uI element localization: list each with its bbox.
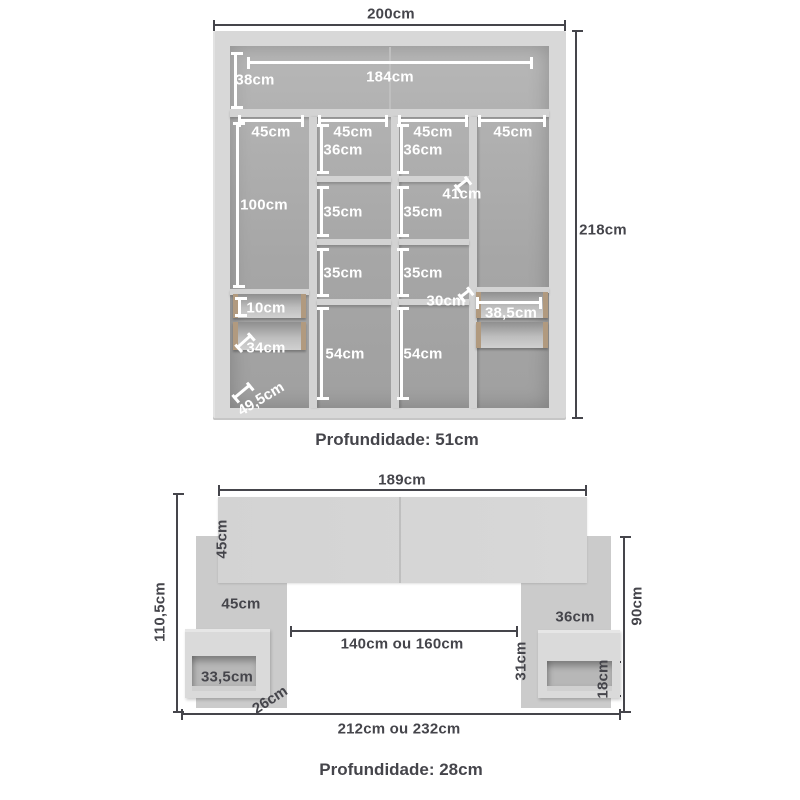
panel-height-label: 45cm [214, 519, 231, 558]
left-column-height-dim-line [236, 122, 239, 288]
wardrobe-width-dim-line [213, 24, 566, 26]
col3-shelf-2 [399, 239, 469, 245]
col2-shelf-2 [317, 239, 391, 245]
col3-width-label: 45cm [413, 124, 452, 141]
inner-width-dim-line [247, 61, 533, 64]
col2-shelf-1 [317, 176, 391, 182]
right-height-label: 90cm [629, 586, 646, 625]
right-height-dim-line [623, 536, 625, 713]
top-shelf [230, 109, 549, 117]
total-width-label: 212cm ou 232cm [338, 721, 461, 738]
col2-35a-label: 35cm [323, 204, 362, 221]
drawer-height-label: 10cm [246, 300, 285, 317]
side-panel-width-label: 45cm [221, 596, 260, 613]
col4-width-label: 45cm [493, 124, 532, 141]
col1-width-label: 45cm [251, 124, 290, 141]
headboard-diagram: 189cm 110,5cm 45cm 45cm 33,5cm 26cm 140c… [0, 455, 800, 800]
headboard-width-dim-line [218, 489, 587, 491]
col3-width-dim-line [398, 119, 468, 122]
total-width-dim-line [181, 713, 621, 715]
niche-right-height-label: 18cm [595, 659, 612, 698]
left-column-height-label: 100cm [240, 197, 288, 214]
headboard-width-label: 189cm [378, 472, 426, 489]
col1-width-dim-line [238, 119, 304, 122]
furniture-dimension-sheet: { "colors":{ "ink":"#45454b", "wardrobe_… [0, 0, 800, 800]
col2-width-dim-line [318, 119, 388, 122]
drawer-section-height-label: 30cm [426, 293, 465, 310]
divider-2 [391, 117, 399, 408]
col3-35b-label: 35cm [403, 265, 442, 282]
col2-shelf-3 [317, 299, 391, 305]
wardrobe-height-label: 218cm [579, 222, 627, 239]
right-drawer-width-label: 38,5cm [485, 305, 537, 322]
total-height-label: 110,5cm [152, 582, 169, 642]
headboard-seam [399, 497, 401, 583]
right-drawer-2 [476, 322, 548, 348]
bed-gap-label: 140cm ou 160cm [341, 636, 464, 653]
divider-1 [309, 117, 317, 408]
inner-width-label: 184cm [366, 69, 414, 86]
col2-54-dim-line [320, 307, 323, 400]
niche-left-width-label: 33,5cm [201, 669, 253, 686]
col3-36-label: 36cm [403, 142, 442, 159]
drawer-height-dim-line [238, 297, 241, 317]
headboard-panel [218, 497, 587, 583]
wardrobe-width-label: 200cm [367, 6, 415, 23]
col2-54-label: 54cm [325, 346, 364, 363]
top-shelf-height-label: 38cm [235, 72, 274, 89]
nightstand-right-width-label: 36cm [555, 609, 594, 626]
divider-3 [469, 117, 477, 408]
col3-54-label: 54cm [403, 346, 442, 363]
col2-width-label: 45cm [333, 124, 372, 141]
bed-gap-dim-line [290, 630, 518, 632]
col3-35a-label: 35cm [403, 204, 442, 221]
col2-35b-label: 35cm [323, 265, 362, 282]
drawer-depth-label: 34cm [246, 340, 285, 357]
headboard-depth-caption: Profundidade: 28cm [319, 760, 482, 780]
shelf-depth-label: 41cm [442, 186, 481, 203]
nightstand-right-height-label: 31cm [513, 641, 530, 680]
total-height-dim-line [176, 493, 178, 713]
col3-shelf-1 [399, 176, 469, 182]
wardrobe-diagram: 200cm 218cm 184cm 38cm 45cm 45cm 45cm 45… [0, 0, 800, 455]
col4-width-dim-line [478, 119, 546, 122]
wardrobe-depth-caption: Profundidade: 51cm [315, 430, 478, 450]
wardrobe-height-dim-line [575, 30, 577, 419]
col2-36-label: 36cm [323, 142, 362, 159]
